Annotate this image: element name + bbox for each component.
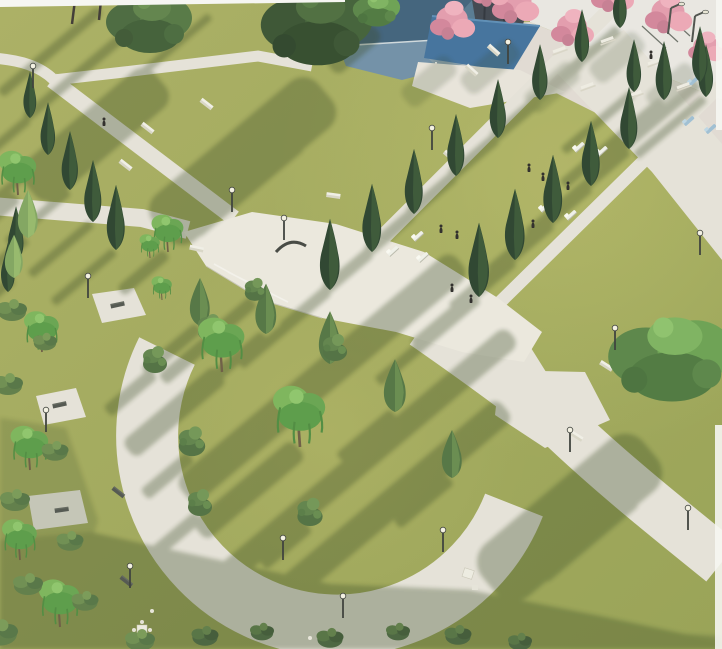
scan-edges: [0, 0, 722, 649]
scan-wash: [0, 0, 722, 649]
park-render: Aerial rendering of a landscaped park: a…: [0, 0, 722, 649]
park-render-canvas: [0, 0, 722, 649]
